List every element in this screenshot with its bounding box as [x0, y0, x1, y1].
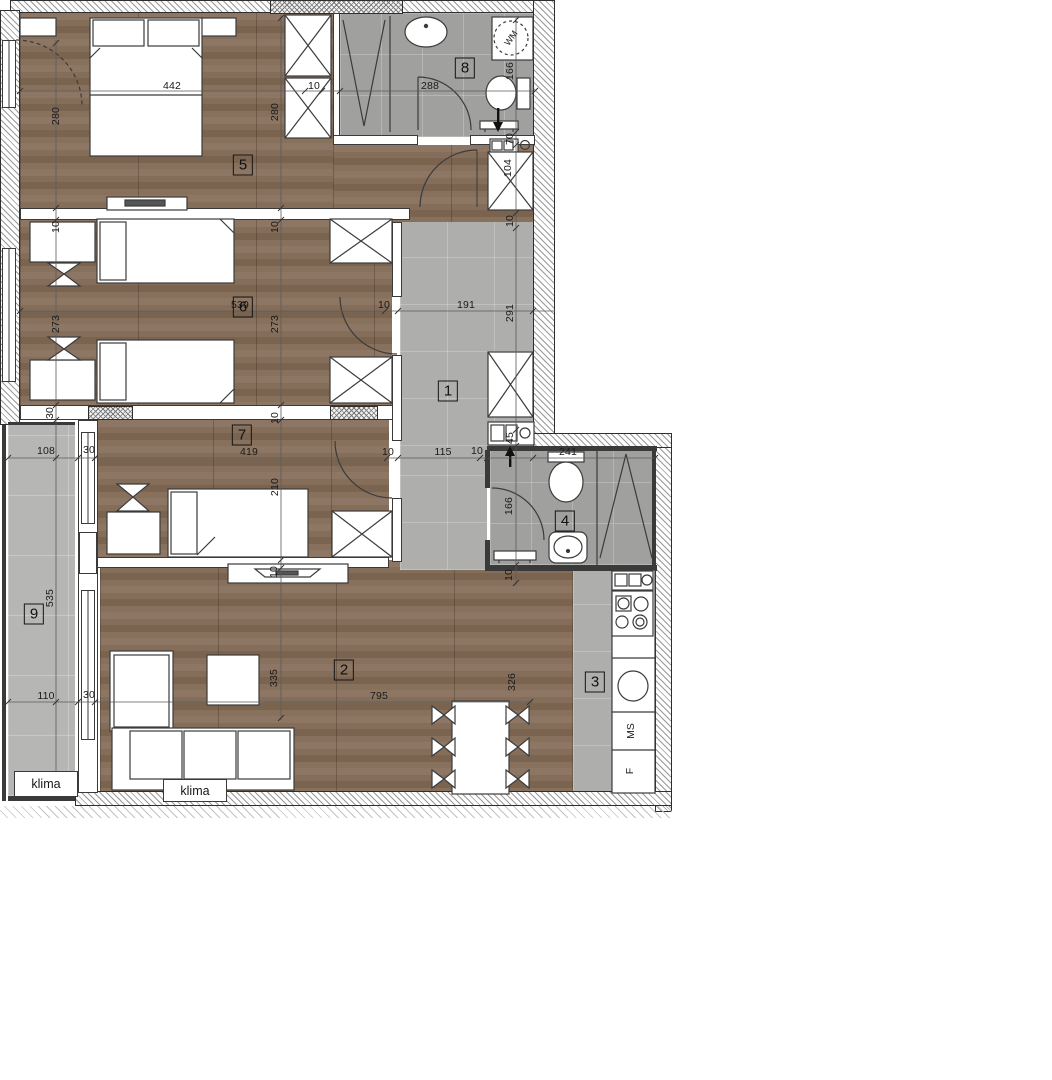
wall-balcony-edge-top	[8, 422, 75, 425]
klima-living-label: klima	[180, 784, 209, 798]
dimension-label: 10	[269, 221, 281, 233]
floor-hallway	[400, 222, 533, 446]
room-number-label: 6	[233, 297, 253, 318]
fridge-label: F	[624, 768, 636, 774]
dimension-label: 30	[83, 444, 95, 456]
floor-bedroom-6	[20, 220, 392, 405]
wall-bath8-left	[333, 13, 340, 137]
dimension-label: 210	[269, 478, 281, 496]
dimension-label: 70	[504, 133, 516, 145]
dimension-label: 419	[240, 446, 258, 458]
room-number-label: 8	[455, 58, 475, 79]
wall-bath4-left-b	[485, 540, 490, 567]
dimension-label: 273	[269, 315, 281, 333]
dimension-label: 10	[378, 299, 390, 311]
dimension-label: 273	[50, 315, 62, 333]
dimension-label: 10	[471, 445, 483, 457]
room-number-label: 9	[24, 604, 44, 625]
dishwasher-label: MS	[625, 723, 637, 739]
dimension-label: 166	[503, 497, 515, 515]
room-number-label: 2	[334, 660, 354, 681]
dimension-label: 10	[50, 221, 62, 233]
wall-balcony-left	[2, 425, 6, 801]
dimension-label: 10	[269, 412, 281, 424]
dimension-label: 326	[506, 673, 518, 691]
wall-top-masonry	[270, 0, 403, 14]
dimension-label: 45	[504, 432, 516, 444]
window-living-balcony	[81, 590, 95, 740]
dimension-label: 280	[269, 103, 281, 121]
wall-bath8-bottom-a	[333, 135, 418, 145]
wall-room7-masonry-left	[88, 406, 133, 420]
room-number-label: 7	[232, 425, 252, 446]
dimension-label: 291	[504, 304, 516, 322]
dimension-label: 535	[44, 589, 56, 607]
wall-bath4-right	[652, 450, 656, 567]
wall-hall-left-b	[392, 355, 402, 441]
floor-bedroom-5	[20, 13, 333, 208]
dimension-label: 10	[308, 80, 320, 92]
wall-bath4-left-a	[485, 450, 490, 488]
floor-hallway-lower	[400, 446, 487, 570]
klima-unit-living: klima	[163, 779, 227, 802]
room-number-label: 5	[233, 155, 253, 176]
room-number-label: 1	[438, 381, 458, 402]
dimension-label: 110	[37, 690, 54, 702]
dimension-label: 166	[504, 62, 516, 80]
window-room6	[2, 248, 16, 382]
wall-room7-living	[95, 557, 389, 568]
wall-bath8-bottom-b	[470, 135, 535, 145]
dimension-label: 10	[503, 569, 515, 581]
dimension-label: 795	[370, 690, 388, 702]
klima-balcony-label: klima	[31, 777, 60, 791]
wall-bottom-hatch	[0, 806, 672, 818]
dimension-label: 191	[457, 299, 475, 311]
dimension-label: 288	[421, 80, 439, 92]
dimension-label: 104	[502, 159, 514, 177]
wall-room7-masonry-right	[330, 406, 378, 420]
floor-plan-canvas: { "plan": { "rooms": [ {"n":"1","x":448,…	[0, 0, 1052, 1080]
dimension-label: 241	[559, 446, 577, 458]
wall-right-lower	[655, 447, 672, 812]
wall-room5-room6	[20, 208, 410, 220]
dimension-label: 10	[382, 446, 394, 458]
dimension-label: 30	[83, 689, 95, 701]
window-room5	[2, 40, 16, 108]
dimension-label: 10	[268, 566, 280, 578]
dimension-label: 108	[37, 445, 55, 457]
dimension-label: 335	[268, 669, 280, 687]
klima-unit-balcony: klima	[14, 771, 78, 797]
dimension-label: 115	[434, 446, 451, 458]
door-room7-balcony	[79, 532, 97, 574]
dimension-label: 30	[44, 407, 56, 419]
dimension-label: 442	[163, 80, 181, 92]
wall-hall-left-a	[392, 222, 402, 297]
room-number-label: 3	[585, 672, 605, 693]
room-number-label: 4	[555, 511, 575, 532]
wall-right-upper	[533, 0, 555, 450]
wall-hall-left-c	[392, 498, 402, 562]
dimension-label: 280	[50, 107, 62, 125]
dimension-label: 10	[504, 215, 516, 227]
